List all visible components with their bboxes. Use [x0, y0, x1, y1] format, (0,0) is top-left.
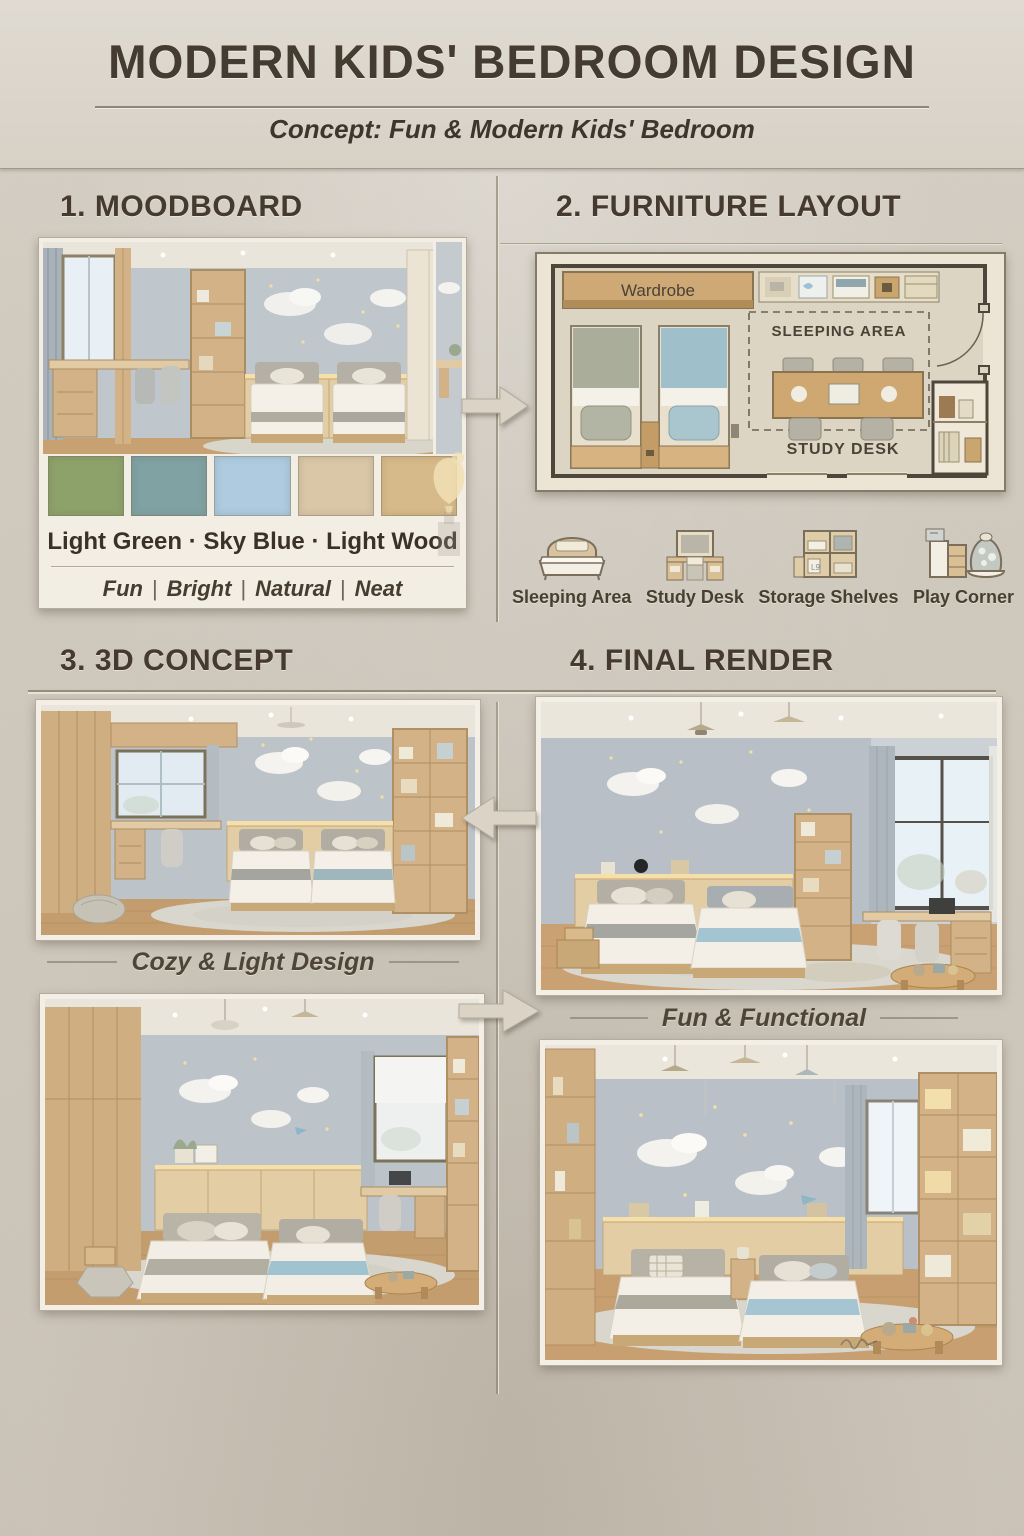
- caption-text: Fun & Functional: [662, 1004, 866, 1033]
- bed-left: [229, 829, 313, 911]
- bed-right: [333, 362, 405, 443]
- tagline-word: Bright: [167, 576, 232, 601]
- arrow-right-icon: [460, 382, 532, 430]
- arrow-right-icon: [455, 982, 543, 1040]
- bed-right: [691, 886, 807, 978]
- final-caption: Fun & Functional: [536, 998, 992, 1038]
- final-render-2: [540, 1040, 1002, 1365]
- legend-label: Sleeping Area: [512, 587, 631, 608]
- tagline-separator: |: [231, 576, 255, 601]
- tagline-word: Neat: [355, 576, 403, 601]
- desk-icon: [659, 527, 731, 583]
- caption-dash: [389, 961, 459, 963]
- palette-label: Light Green · Sky Blue · Light Wood: [39, 528, 466, 556]
- section-title-3d-concept: 3. 3D CONCEPT: [60, 644, 293, 678]
- plan-bed-green: [571, 326, 641, 468]
- furniture-legend: Sleeping Area Study Desk L9: [512, 502, 1014, 608]
- color-swatches: [48, 456, 457, 518]
- bottom-section-rule: [28, 690, 996, 692]
- legend-label: Play Corner: [913, 587, 1014, 608]
- svg-text:STUDY DESK: STUDY DESK: [787, 441, 900, 458]
- moodboard-divider: [51, 566, 454, 567]
- plan-wardrobe: Wardrobe: [563, 272, 753, 308]
- caption-dash: [570, 1017, 648, 1019]
- svg-text:L9: L9: [811, 563, 820, 572]
- caption-text: Cozy & Light Design: [131, 948, 374, 977]
- page-subtitle: Concept: Fun & Modern Kids' Bedroom: [0, 114, 1024, 145]
- swatch-light-wood: [298, 456, 374, 516]
- tagline-word: Fun: [103, 576, 143, 601]
- tagline-separator: |: [331, 576, 355, 601]
- legend-study-desk: Study Desk: [646, 502, 744, 608]
- swatch-light-green: [48, 456, 124, 516]
- section-title-final-render: 4. FINAL RENDER: [570, 644, 834, 678]
- floor-plan-card: Wardrobe SLEEPING AREA: [535, 252, 1006, 492]
- svg-text:SLEEPING AREA: SLEEPING AREA: [772, 323, 907, 340]
- furniture-header-rule: [500, 243, 1002, 244]
- svg-text:Wardrobe: Wardrobe: [621, 281, 695, 300]
- legend-storage-shelves: L9 Storage Shelves: [758, 502, 898, 608]
- bed-right: [311, 829, 395, 911]
- page-title: MODERN KIDS' BEDROOM DESIGN: [10, 34, 1014, 89]
- concept-render-1: [36, 700, 480, 940]
- swatch-sky-blue: [214, 456, 290, 516]
- arrow-left-icon: [456, 790, 538, 846]
- title-divider: [95, 106, 929, 108]
- legend-sleeping-area: Sleeping Area: [512, 502, 631, 608]
- section-title-moodboard: 1. MOODBOARD: [60, 190, 303, 224]
- plan-storage: [933, 382, 987, 474]
- legend-label: Study Desk: [646, 587, 744, 608]
- bed-icon: [530, 527, 614, 583]
- final-render-1: [536, 697, 1002, 995]
- moodboard-card: Light Green · Sky Blue · Light Wood Fun|…: [38, 237, 467, 609]
- bed-right: [263, 1219, 375, 1304]
- caption-dash: [880, 1017, 958, 1019]
- tagline-separator: |: [143, 576, 167, 601]
- hot-air-balloon-doodle-icon: [428, 450, 470, 560]
- bed-left: [251, 362, 323, 443]
- legend-label: Storage Shelves: [758, 587, 898, 608]
- caption-dash: [47, 961, 117, 963]
- moodboard-room-photo: [43, 242, 462, 454]
- concept-render-2: [40, 994, 484, 1310]
- design-poster: MODERN KIDS' BEDROOM DESIGN Concept: Fun…: [0, 0, 1024, 1536]
- shelves-icon: L9: [790, 527, 866, 583]
- swatch-sea-teal: [131, 456, 207, 516]
- plan-bed-blue: [659, 326, 729, 468]
- tagline-word: Natural: [255, 576, 331, 601]
- concept-caption: Cozy & Light Design: [36, 942, 470, 982]
- section-title-furniture-layout: 2. FURNITURE LAYOUT: [556, 190, 901, 224]
- legend-play-corner: Play Corner: [913, 502, 1014, 608]
- play-table: [891, 964, 975, 990]
- style-tagline: Fun|Bright|Natural|Neat: [39, 576, 466, 602]
- floor-plan-drawing: Wardrobe SLEEPING AREA: [537, 254, 1000, 486]
- play-corner-icon: [918, 527, 1008, 583]
